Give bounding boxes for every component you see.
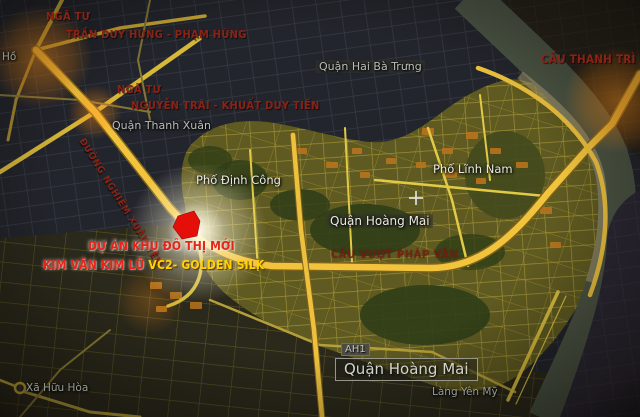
map-viewport[interactable]: NGÃ TƯ TRẦN DUY HƯNG - PHẠM HÙNG NGÃ TƯ … [0, 0, 640, 417]
map-render [0, 0, 640, 417]
